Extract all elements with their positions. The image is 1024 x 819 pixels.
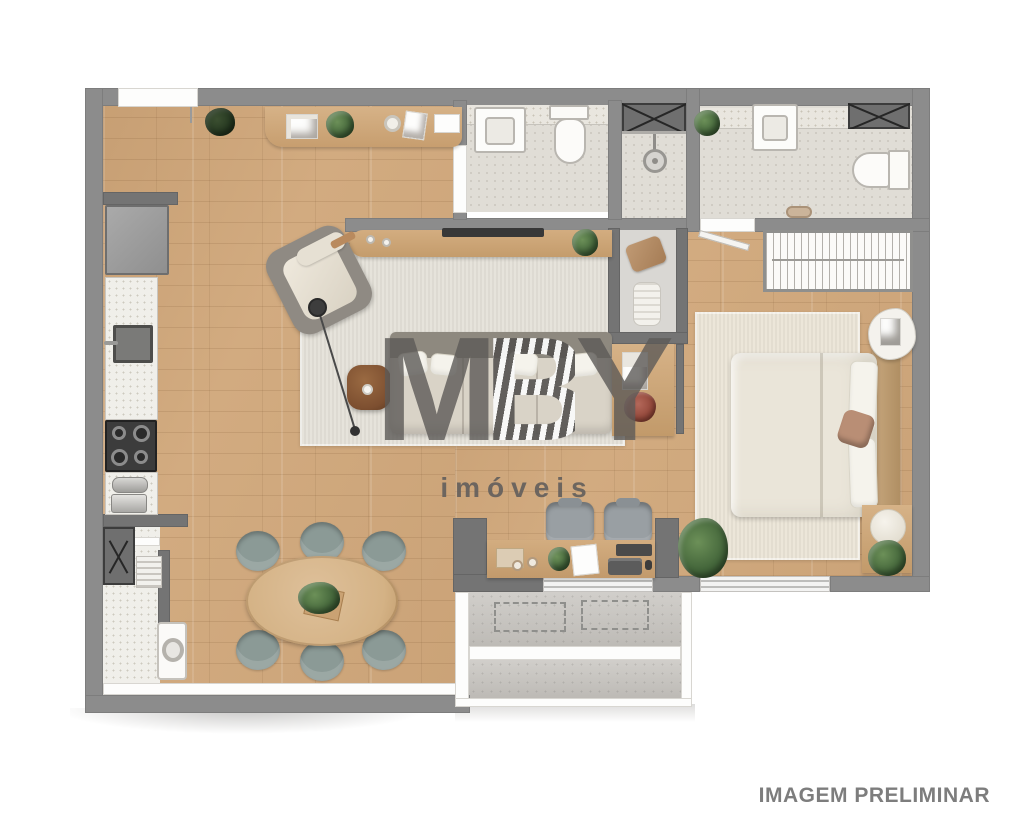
service-shaft bbox=[103, 527, 135, 585]
ensuite-soap-set bbox=[786, 206, 812, 218]
bed-pillow-2 bbox=[848, 438, 878, 509]
nightstand-top-frame bbox=[880, 318, 901, 346]
wall-desk-east bbox=[655, 518, 679, 578]
exterior-shadow-bottom-left bbox=[70, 708, 500, 744]
stove-burner-1 bbox=[112, 426, 126, 440]
floor-lamp-head bbox=[308, 298, 327, 317]
preliminary-image-disclaimer: IMAGEM PRELIMINAR bbox=[640, 784, 990, 808]
desk-mouse bbox=[645, 560, 652, 570]
floorplan-canvas: MBY imóveis IMAGEM PRELIMINAR bbox=[0, 0, 1024, 819]
tv bbox=[442, 228, 544, 237]
drying-rack bbox=[136, 556, 162, 588]
desk-sliding-window bbox=[543, 576, 653, 592]
bathleft-toilet-bowl bbox=[554, 118, 586, 164]
stove-burner-4 bbox=[134, 450, 148, 464]
bedfoot-plant bbox=[678, 518, 728, 578]
watermark-letter-b: B bbox=[483, 307, 575, 472]
shaft-ensuite bbox=[848, 103, 910, 129]
stove-burner-3 bbox=[111, 449, 128, 466]
sideboard-plant bbox=[326, 111, 354, 138]
kitchen-faucet bbox=[104, 341, 118, 345]
dining-window bbox=[103, 683, 460, 695]
watermark-logo: MBY bbox=[372, 316, 662, 464]
desk-plant bbox=[548, 547, 570, 571]
ensuite-toilet-tank bbox=[888, 150, 910, 190]
shower-head-center bbox=[652, 158, 658, 164]
wall-sidetable-east bbox=[676, 344, 684, 434]
console-plant bbox=[572, 229, 598, 256]
bed-duvet-fold bbox=[820, 353, 823, 517]
balcony-divider bbox=[469, 646, 681, 660]
sideboard-frame-2 bbox=[402, 111, 428, 141]
sideboard-bowl bbox=[384, 115, 401, 132]
ensuite-sink-bowl bbox=[762, 115, 788, 141]
ac-unit-marker-2 bbox=[581, 600, 649, 630]
wall-bedroom-bottom bbox=[830, 576, 930, 592]
ensuite-plant bbox=[694, 110, 720, 136]
desk-paper bbox=[571, 544, 600, 577]
floor-balcony-lower bbox=[469, 660, 681, 698]
wall-kitchen-stub bbox=[103, 192, 178, 205]
floor-lamp-base bbox=[350, 426, 360, 436]
bedroom-sliding-window bbox=[700, 576, 830, 592]
balcony-rail-west bbox=[455, 592, 469, 704]
entry-door bbox=[118, 88, 198, 107]
ac-unit-marker-1 bbox=[494, 602, 566, 632]
console-cup-2 bbox=[382, 238, 391, 247]
stove-burner-2 bbox=[133, 425, 150, 442]
washer-door bbox=[162, 638, 184, 662]
sideboard-box bbox=[434, 114, 460, 133]
watermark-subtitle: imóveis bbox=[372, 472, 662, 504]
wall-ensuite-west bbox=[686, 88, 700, 232]
sideboard-frame-1 bbox=[286, 114, 318, 139]
kettle bbox=[112, 477, 148, 493]
wardrobe bbox=[763, 230, 913, 292]
bathleft-sink-bowl bbox=[485, 117, 515, 145]
shaft-shower bbox=[622, 103, 686, 133]
watermark-letter-m: M bbox=[375, 307, 483, 472]
ensuite-door bbox=[700, 218, 755, 232]
wall-top bbox=[85, 88, 930, 106]
foyer-plant-dark bbox=[205, 108, 235, 136]
wall-service-top bbox=[103, 514, 188, 527]
wall-window-pier bbox=[652, 576, 700, 592]
fridge bbox=[105, 205, 169, 275]
entry-door-swing bbox=[190, 107, 192, 123]
desk-keyboard bbox=[616, 544, 652, 556]
console-cup-1 bbox=[366, 235, 375, 244]
wall-shower-west bbox=[608, 100, 622, 220]
desk-cup-2 bbox=[527, 557, 538, 568]
dining-centerpiece-plant bbox=[298, 582, 340, 614]
watermark-letter-y: Y bbox=[575, 307, 659, 472]
desk-cup-1 bbox=[512, 560, 523, 571]
nightstand-plant bbox=[868, 540, 906, 576]
wall-niche-east bbox=[676, 228, 688, 344]
dining-chair-5 bbox=[300, 641, 344, 681]
kitchen-sink bbox=[113, 325, 153, 363]
watermark: MBY imóveis bbox=[372, 316, 662, 516]
desk-printer bbox=[608, 558, 642, 575]
ensuite-toilet-bowl bbox=[852, 152, 890, 188]
toaster bbox=[111, 494, 147, 513]
bathroom-left-door bbox=[453, 145, 467, 213]
balcony-rail-east bbox=[681, 592, 692, 704]
wall-left bbox=[85, 88, 103, 713]
wall-bottom-left bbox=[85, 695, 470, 713]
balcony-rail-south bbox=[455, 698, 692, 707]
